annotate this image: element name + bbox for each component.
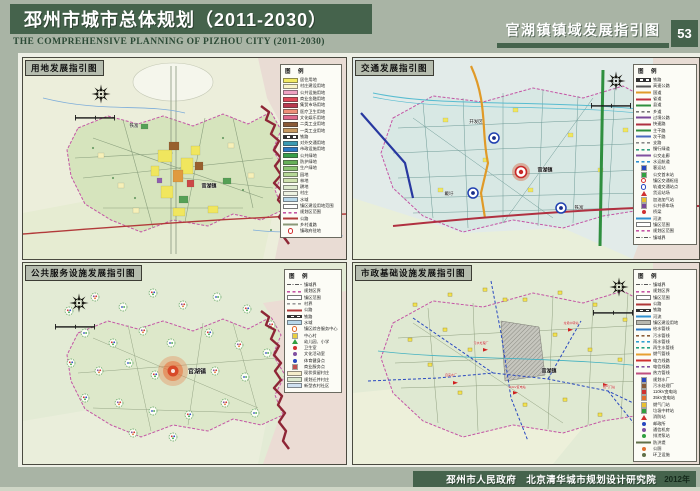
legend-item: 镇政府驻地 <box>283 228 339 234</box>
legend-label: 规划区界 <box>304 288 321 294</box>
legend-swatch <box>636 314 651 319</box>
legend-label: 镇域界 <box>653 282 666 288</box>
legend-swatch <box>636 446 651 451</box>
panel-traffic: 交通发展指引图 开发区官湖镇戴圩铁富 图 例 铁路 <box>352 57 700 260</box>
legend-label: 给水管线 <box>653 326 670 332</box>
legend-label: 镇区范围 <box>653 222 670 228</box>
legend-label: 商业服务点 <box>304 364 325 370</box>
legend-label: 镇域界 <box>304 282 317 288</box>
legend-label: 河流 <box>653 216 661 222</box>
legend-label: 电力线路 <box>653 358 670 364</box>
legend-label: 支路 <box>653 140 661 146</box>
legend-swatch <box>636 390 651 395</box>
panel-municipal: 市政基础设施发展指引图 官湖镇污水处理厂自来水厂110kV变电站垃圾中转站燃气门… <box>352 262 700 465</box>
legend-swatch <box>636 427 651 432</box>
legend-swatch <box>636 204 651 209</box>
legend-swatch <box>283 191 298 196</box>
sheet-title: 官湖镇镇域发展指引图 <box>497 20 669 40</box>
scale-bar <box>591 96 631 114</box>
legend-label: 排涝泵站 <box>653 433 670 439</box>
legend-label: 村界 <box>304 301 312 307</box>
legend-label: 燃气管线 <box>653 351 670 357</box>
legend-label: 镇政府驻地 <box>300 228 321 234</box>
legend-label: 一类工业用地 <box>300 128 325 134</box>
legend-swatch <box>636 78 651 82</box>
footer-credits: 邳州市人民政府 北京清华城市规划设计研究院 <box>446 472 656 486</box>
legend-municipal: 图 例 镇域界 规划区界 镇区范围 <box>633 269 697 462</box>
legend-label: 主干路 <box>653 128 666 134</box>
legend-swatch <box>636 229 651 234</box>
legend-label: 污水管线 <box>653 333 670 339</box>
legend-swatch <box>636 115 651 120</box>
legend-swatch <box>287 308 302 313</box>
legend-swatch <box>287 315 302 319</box>
legend-swatch <box>283 78 298 83</box>
legend-label: 热力管线 <box>653 370 670 376</box>
panel-title-public-services: 公共服务设施发展指引图 <box>25 265 142 281</box>
legend-label: 公交首末站 <box>653 172 674 178</box>
legend-swatch <box>287 365 302 370</box>
legend-swatch <box>636 402 651 407</box>
legend-swatch <box>283 141 298 146</box>
legend-item: 镇区综合服务中心 <box>287 326 339 332</box>
plan-title-cn: 邳州市城市总体规划（2011-2030） <box>24 6 327 32</box>
legend-label: 燃气门站 <box>653 402 670 408</box>
legend-label: 二类工业用地 <box>300 121 325 127</box>
legend-label: 铁路 <box>653 77 661 83</box>
legend-label: 再生水管线 <box>653 345 674 351</box>
legend-swatch <box>283 185 298 190</box>
legend-label: 耕地 <box>300 184 308 190</box>
compass-rose-icon <box>69 293 89 313</box>
legend-swatch <box>636 210 651 215</box>
legend-label: 乡村道路 <box>300 222 317 228</box>
legend-swatch <box>287 320 302 325</box>
legend-swatch <box>287 327 302 332</box>
legend-swatch <box>287 371 302 376</box>
legend-label: 河流 <box>653 314 661 320</box>
legend-label: 规划区范围 <box>300 209 321 215</box>
panel-title-municipal: 市政基础设施发展指引图 <box>355 265 472 281</box>
legend-swatch <box>636 409 651 414</box>
legend-swatch <box>636 147 651 152</box>
legend-label: 快速路 <box>653 121 666 127</box>
legend-label: 110kV变电站 <box>653 389 677 395</box>
plan-title-en: THE COMPREHENSIVE PLANNING OF PIZHOU CIT… <box>13 37 325 47</box>
legend-label: 加油加气站 <box>653 197 674 203</box>
legend-swatch <box>283 229 298 234</box>
legend-label: 高速公路 <box>653 83 670 89</box>
legend-swatch <box>636 339 651 344</box>
legend-swatch <box>287 358 302 363</box>
legend-label: 铁路 <box>304 314 312 320</box>
legend-label: 次干路 <box>653 134 666 140</box>
footer: 邳州市人民政府 北京清华城市规划设计研究院 2012年 <box>413 471 696 487</box>
legend-swatch <box>636 191 651 196</box>
scale-bar <box>593 303 633 321</box>
legend-label: 镇区范围 <box>653 295 670 301</box>
legend-swatch <box>636 440 651 445</box>
legend-label: 通信机房 <box>653 427 670 433</box>
legend-label: 消防站 <box>653 414 666 420</box>
legend-label: 规划迁并村庄 <box>304 377 329 383</box>
scale-bar <box>55 317 95 335</box>
legend-label: 生产绿地 <box>300 165 317 171</box>
compass-rose-icon <box>609 277 629 297</box>
legend-label: 慢行绿道 <box>653 146 670 152</box>
legend-label: 中心村 <box>304 333 317 339</box>
legend-label: 文化活动室 <box>304 351 325 357</box>
legend-swatch <box>636 216 651 221</box>
legend-label: 货运站场 <box>653 190 670 196</box>
legend-swatch <box>636 109 651 114</box>
legend-item: 镇域界 <box>636 234 694 240</box>
legend-swatch <box>283 84 298 89</box>
map-board: 用地发展指引图 铁富官湖镇 图 例 居住用地 <box>18 53 700 467</box>
legend-label: 铁路 <box>300 134 308 140</box>
legend-swatch <box>636 371 651 376</box>
legend-label: 客运站 <box>653 165 666 171</box>
legend-swatch <box>283 147 298 152</box>
legend-label: 规划水厂 <box>653 377 670 383</box>
legend-label: 公共设施用地 <box>300 90 325 96</box>
legend-swatch <box>636 97 651 102</box>
legend-label: 文化娱乐用地 <box>300 115 325 121</box>
legend-label: 林地 <box>300 178 308 184</box>
scale-bar <box>75 108 115 126</box>
legend-swatch <box>636 134 651 139</box>
panel-title-traffic: 交通发展指引图 <box>355 60 434 76</box>
legend-label: 县道 <box>653 102 661 108</box>
legend-swatch <box>636 352 651 357</box>
legend-swatch <box>283 216 298 221</box>
legend-swatch <box>636 84 651 89</box>
legend-title: 图 例 <box>638 272 694 280</box>
legend-label: 新型农村社区 <box>304 383 329 389</box>
plan-sheet-page: { "header": { "title_cn": "邳州市城市总体规划（201… <box>0 0 700 491</box>
legend-swatch <box>636 396 651 401</box>
legend-label: 乡道 <box>653 109 661 115</box>
legend-label: 防护绿地 <box>300 159 317 165</box>
compass-rose-icon <box>91 84 111 104</box>
legend-swatch <box>636 346 651 351</box>
footer-year: 2012年 <box>664 474 690 485</box>
legend-label: 水域 <box>300 197 308 203</box>
legend-swatch <box>636 358 651 363</box>
legend-label: 镇区建设用地 <box>653 320 678 326</box>
legend-label: 市政设施用地 <box>300 146 325 152</box>
legend-swatch <box>287 383 302 388</box>
legend-label: 镇区建设用地范围 <box>300 203 334 209</box>
legend-label: 现状保留村庄 <box>304 370 329 376</box>
legend-swatch <box>636 309 651 313</box>
legend-swatch <box>636 178 651 183</box>
legend-swatch <box>287 377 302 382</box>
legend-swatch <box>283 204 298 209</box>
legend-label: 水运航道 <box>653 159 670 165</box>
legend-swatch <box>283 128 298 133</box>
legend-swatch <box>283 97 298 102</box>
legend-swatch <box>636 320 651 325</box>
legend-label: 雨水管线 <box>653 339 670 345</box>
legend-label: 公交走廊 <box>653 153 670 159</box>
legend-swatch <box>636 421 651 426</box>
legend-swatch <box>287 352 302 357</box>
legend-swatch <box>287 283 302 288</box>
panel-public-services: 公共服务设施发展指引图 官湖镇 图 例 镇域界 <box>22 262 347 465</box>
legend-label: 铁路 <box>653 307 661 313</box>
legend-swatch <box>636 128 651 133</box>
legend-title: 图 例 <box>285 67 339 75</box>
legend-swatch <box>287 339 302 344</box>
legend-swatch <box>283 103 298 108</box>
legend-swatch <box>636 141 651 146</box>
legend-swatch <box>283 122 298 127</box>
legend-item: 新型农村社区 <box>287 383 339 389</box>
legend-swatch <box>287 346 302 351</box>
legend-swatch <box>283 90 298 95</box>
legend-swatch <box>636 295 651 300</box>
legend-swatch <box>283 135 298 139</box>
legend-swatch <box>636 283 651 288</box>
compass-rose-icon <box>606 71 626 91</box>
legend-swatch <box>283 197 298 202</box>
legend-swatch <box>283 178 298 183</box>
legend-swatch <box>636 434 651 439</box>
legend-label: 电信线路 <box>653 364 670 370</box>
legend-swatch <box>636 160 651 165</box>
legend-label: 镇区综合服务中心 <box>304 326 338 332</box>
legend-label: 规划区界 <box>653 288 670 294</box>
header-title-block: 邳州市城市总体规划（2011-2030） <box>10 4 372 34</box>
legend-label: 居住用地 <box>300 77 317 83</box>
legend-swatch <box>636 377 651 382</box>
legend-swatch <box>283 109 298 114</box>
legend-label: 桥梁 <box>653 209 661 215</box>
legend-swatch <box>283 160 298 165</box>
legend-label: 35kV变电站 <box>653 395 675 401</box>
legend-label: 集贸市场用地 <box>300 102 325 108</box>
legend-swatch <box>636 166 651 171</box>
legend-label: 环卫设施 <box>653 452 670 458</box>
legend-label: 镇域界 <box>653 235 666 241</box>
legend-swatch <box>287 333 302 338</box>
legend-label: 镇区范围 <box>304 295 321 301</box>
panel-landuse: 用地发展指引图 铁富官湖镇 图 例 居住用地 <box>22 57 347 260</box>
legend-swatch <box>636 90 651 95</box>
legend-swatch <box>636 327 651 332</box>
legend-label: 公厕 <box>653 446 661 452</box>
legend-label: 规划区范围 <box>653 228 674 234</box>
legend-swatch <box>287 289 302 294</box>
legend-swatch <box>283 153 298 158</box>
legend-swatch <box>283 222 298 227</box>
legend-swatch <box>636 453 651 458</box>
legend-title: 图 例 <box>289 272 339 280</box>
legend-swatch <box>283 210 298 215</box>
legend-label: 村庄建设用地 <box>300 83 325 89</box>
legend-label: 过境公路 <box>653 115 670 121</box>
legend-swatch <box>636 415 651 420</box>
legend-label: 公共停车场 <box>653 203 674 209</box>
legend-label: 卫生室 <box>304 345 317 351</box>
legend-item: 环卫设施 <box>636 452 694 458</box>
legend-swatch <box>636 172 651 177</box>
legend-label: 公路 <box>304 307 312 313</box>
legend-label: 邮政所 <box>653 421 666 427</box>
legend-label: 体育健身点 <box>304 358 325 364</box>
legend-label: 对外交通用地 <box>300 140 325 146</box>
legend-swatch <box>636 185 651 190</box>
legend-label: 村庄 <box>300 190 308 196</box>
legend-swatch <box>636 333 651 338</box>
legend-label: 轨道交通站点 <box>653 184 678 190</box>
legend-label: 幼儿园、小学 <box>304 339 329 345</box>
page-number: 53 <box>671 20 698 47</box>
legend-public-services: 图 例 镇域界 规划区界 镇区范围 <box>284 269 342 393</box>
legend-label: 公路 <box>300 216 308 222</box>
legend-label: 公共绿地 <box>300 153 317 159</box>
sheet-title-underline <box>497 43 669 48</box>
bottom-edge-strip <box>0 487 700 491</box>
legend-swatch <box>287 295 302 300</box>
legend-swatch <box>283 166 298 171</box>
legend-swatch <box>287 302 302 307</box>
legend-label: 镇区交通枢纽 <box>653 178 678 184</box>
legend-swatch <box>636 365 651 370</box>
legend-swatch <box>283 172 298 177</box>
legend-swatch <box>636 235 651 240</box>
legend-label: 省道 <box>653 96 661 102</box>
legend-swatch <box>636 153 651 158</box>
legend-swatch <box>636 302 651 307</box>
legend-label: 商业金融用地 <box>300 96 325 102</box>
legend-swatch <box>636 103 651 108</box>
legend-label: 医疗卫生用地 <box>300 109 325 115</box>
legend-swatch <box>636 289 651 294</box>
legend-landuse: 图 例 居住用地 村庄建设用地 公共设施用地 <box>280 64 342 238</box>
legend-swatch <box>636 383 651 388</box>
legend-label: 污水处理厂 <box>653 383 674 389</box>
legend-label: 国道 <box>653 90 661 96</box>
legend-label: 公路 <box>653 301 661 307</box>
legend-swatch <box>636 222 651 227</box>
legend-swatch <box>283 115 298 120</box>
legend-traffic: 图 例 铁路 高速公路 国道 <box>633 64 697 245</box>
legend-label: 防洪堤 <box>653 440 666 446</box>
legend-label: 垃圾中转站 <box>653 408 674 414</box>
legend-label: 园地 <box>300 172 308 178</box>
legend-swatch <box>636 197 651 202</box>
panel-title-landuse: 用地发展指引图 <box>25 60 104 76</box>
legend-swatch <box>636 122 651 127</box>
legend-title: 图 例 <box>638 67 694 75</box>
legend-label: 水域 <box>304 320 312 326</box>
